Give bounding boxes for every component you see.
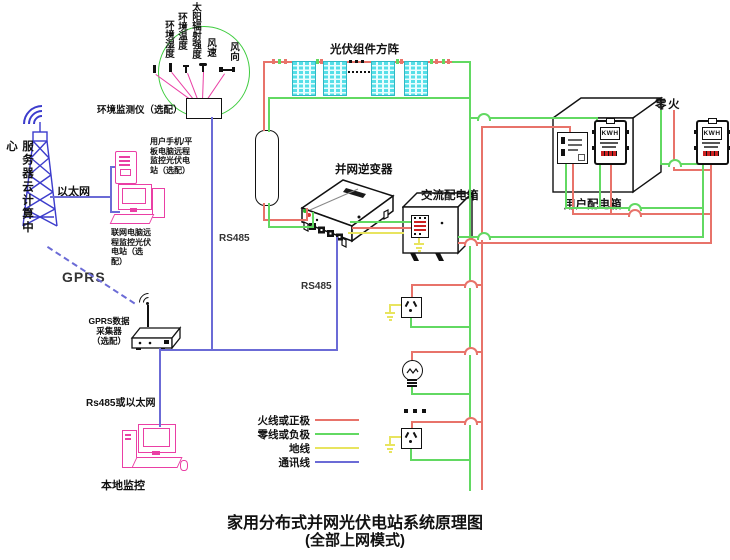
mc4-connector-icon: [447, 59, 450, 64]
legend-line-ground: [315, 447, 359, 449]
env-logger-box: [186, 98, 222, 119]
ground-symbol: [385, 444, 395, 453]
live-bus: [481, 127, 483, 490]
wire-hop: [464, 238, 478, 246]
meter-terminal-strip: [601, 151, 617, 156]
pv-panel: [323, 61, 347, 96]
inverter-ground-out: [348, 232, 404, 234]
diagram-subtitle: (全部上网模式): [140, 529, 570, 550]
server-center-label: 服务器云计算中心: [3, 140, 35, 240]
wire: [599, 160, 601, 209]
legend-line-neutral: [315, 433, 359, 435]
wind-vane-icon: [219, 67, 223, 72]
energy-meter-grid: KWH: [696, 120, 729, 165]
mc4-connector-icon: [400, 59, 403, 64]
socket-icon: [401, 428, 422, 449]
wire-hop: [464, 417, 478, 425]
wire: [389, 436, 391, 444]
legend-item-label: 零线或负极: [252, 427, 310, 442]
legend-item-label: 地线: [252, 441, 310, 456]
wire-hop: [668, 159, 682, 167]
grid-live-wire: [458, 242, 712, 244]
legend-item-label: 通讯线: [252, 455, 310, 470]
humidity-sensor-icon: [153, 65, 156, 73]
load2-neutral: [411, 393, 471, 395]
load3-neutral: [410, 459, 471, 461]
ellipsis-dots: [404, 409, 408, 413]
wire: [306, 208, 308, 221]
series-dots: [356, 71, 358, 73]
pv-grid-breaker-icon: [557, 132, 588, 164]
series-dots: [364, 71, 366, 73]
env-monitor-label: 环境监测仪（选配）: [97, 102, 183, 116]
wire: [702, 160, 704, 238]
lamp-base-icon: [407, 379, 417, 387]
mc4-connector-icon: [435, 59, 438, 64]
dc-isolator: [255, 130, 279, 206]
inverter-live-out: [352, 227, 420, 229]
env-sensor-label-windspeed: 风速: [203, 38, 217, 57]
gprs-collector-label: GPRS数据 采集器 （选配）: [86, 316, 132, 346]
series-dots: [352, 71, 354, 73]
mc4-connector-icon: [278, 59, 281, 64]
gprs-collector-icon: [126, 314, 184, 354]
inverter-icon: [296, 170, 396, 250]
meter-text-smudge: [602, 146, 616, 148]
ground-symbol: [414, 243, 424, 252]
rs485-label-2: RS485: [301, 281, 332, 292]
ellipsis-dots: [422, 409, 426, 413]
pv-array-label: 光伏组件方阵: [330, 41, 399, 57]
mc4-connector-icon: [442, 59, 445, 64]
env-sensor-label-irradiance: 太阳辐射强度: [188, 2, 202, 59]
pv-positive-wire: [263, 61, 265, 131]
wire-hop: [477, 232, 491, 240]
kwh-display: KWH: [702, 127, 722, 140]
socket-icon: [401, 297, 422, 318]
wire: [411, 284, 413, 298]
inverter-rs485-wire: [336, 237, 338, 351]
wire-hop: [628, 209, 642, 217]
series-dots: [355, 60, 358, 63]
legend-line-comm: [315, 461, 359, 463]
mc4-connector-icon: [284, 59, 287, 64]
wire: [268, 226, 314, 228]
remote-pc-note: 联网电脑远程监控光伏电站（选配）: [111, 228, 153, 266]
meter-terminal-strip: [703, 151, 719, 156]
collector-local-wire: [159, 348, 161, 427]
legend-item-label: 火线或正极: [252, 413, 310, 428]
wire: [710, 160, 712, 244]
legend: 火线或正极 零线或负极 地线 通讯线: [252, 410, 362, 468]
pv-panel: [404, 61, 428, 96]
wire-hop: [464, 347, 478, 355]
rs485-bus-wire: [159, 349, 338, 351]
neutral-bus: [469, 61, 471, 491]
mc4-connector-icon: [430, 59, 433, 64]
grid-neutral-wire: [458, 236, 704, 238]
series-dots: [360, 71, 362, 73]
grid-neutral-drop: [660, 110, 662, 165]
wind-vane-icon: [232, 67, 235, 72]
meter-text-smudge: [702, 142, 720, 144]
series-dots: [368, 71, 370, 73]
lamp-icon: [402, 360, 423, 381]
local-monitor-icon: [122, 424, 186, 471]
env-rs485-wire: [211, 117, 213, 350]
rs485-or-ethernet-label: Rs485或以太网: [86, 394, 155, 409]
legend-line-live: [315, 419, 359, 421]
ethernet-wire: [50, 196, 110, 198]
diagram-canvas: 服务器云计算中心 以太网 用户手机/平板电脑远程监控光伏电站（选配） 联网电脑远…: [0, 0, 730, 560]
env-sensor-label-temp: 环境温度: [174, 12, 188, 50]
ac-breaker-icon: [411, 215, 429, 238]
remote-phone-note: 用户手机/平板电脑远程监控光伏电站（选配）: [150, 137, 197, 175]
series-dots: [361, 60, 364, 63]
irradiance-sensor-icon: [185, 65, 187, 73]
pv-panel: [371, 61, 395, 96]
ground-symbol: [385, 312, 395, 321]
energy-meter-pv: KWH: [594, 120, 627, 165]
wire-hop: [464, 280, 478, 288]
wire: [268, 203, 270, 228]
ellipsis-dots: [413, 409, 417, 413]
wire: [481, 126, 571, 128]
local-monitor-label: 本地监控: [101, 477, 145, 493]
mc4-connector-icon: [272, 59, 275, 64]
series-dots: [349, 60, 352, 63]
series-dots: [348, 71, 350, 73]
rs485-label-1: RS485: [219, 233, 250, 244]
env-sensor-label-winddir: 风向: [226, 42, 240, 61]
remote-pc-icon: [112, 184, 168, 226]
wire: [268, 97, 270, 132]
pv-negative-wire: [268, 97, 471, 99]
wire: [389, 304, 391, 312]
wire: [565, 162, 567, 209]
wire: [312, 212, 314, 228]
kwh-display: KWH: [600, 127, 620, 140]
wire: [673, 169, 712, 171]
remote-phone-icon: [115, 151, 137, 184]
meter-text-smudge: [704, 146, 718, 148]
wire-hop: [477, 113, 491, 121]
load1-neutral: [410, 326, 471, 328]
inverter-neutral-out: [350, 221, 413, 223]
env-sensor-label-humidity: 环境湿度: [161, 20, 175, 58]
wire: [573, 213, 712, 215]
pv-panel: [292, 61, 316, 96]
meter-text-smudge: [600, 142, 618, 144]
